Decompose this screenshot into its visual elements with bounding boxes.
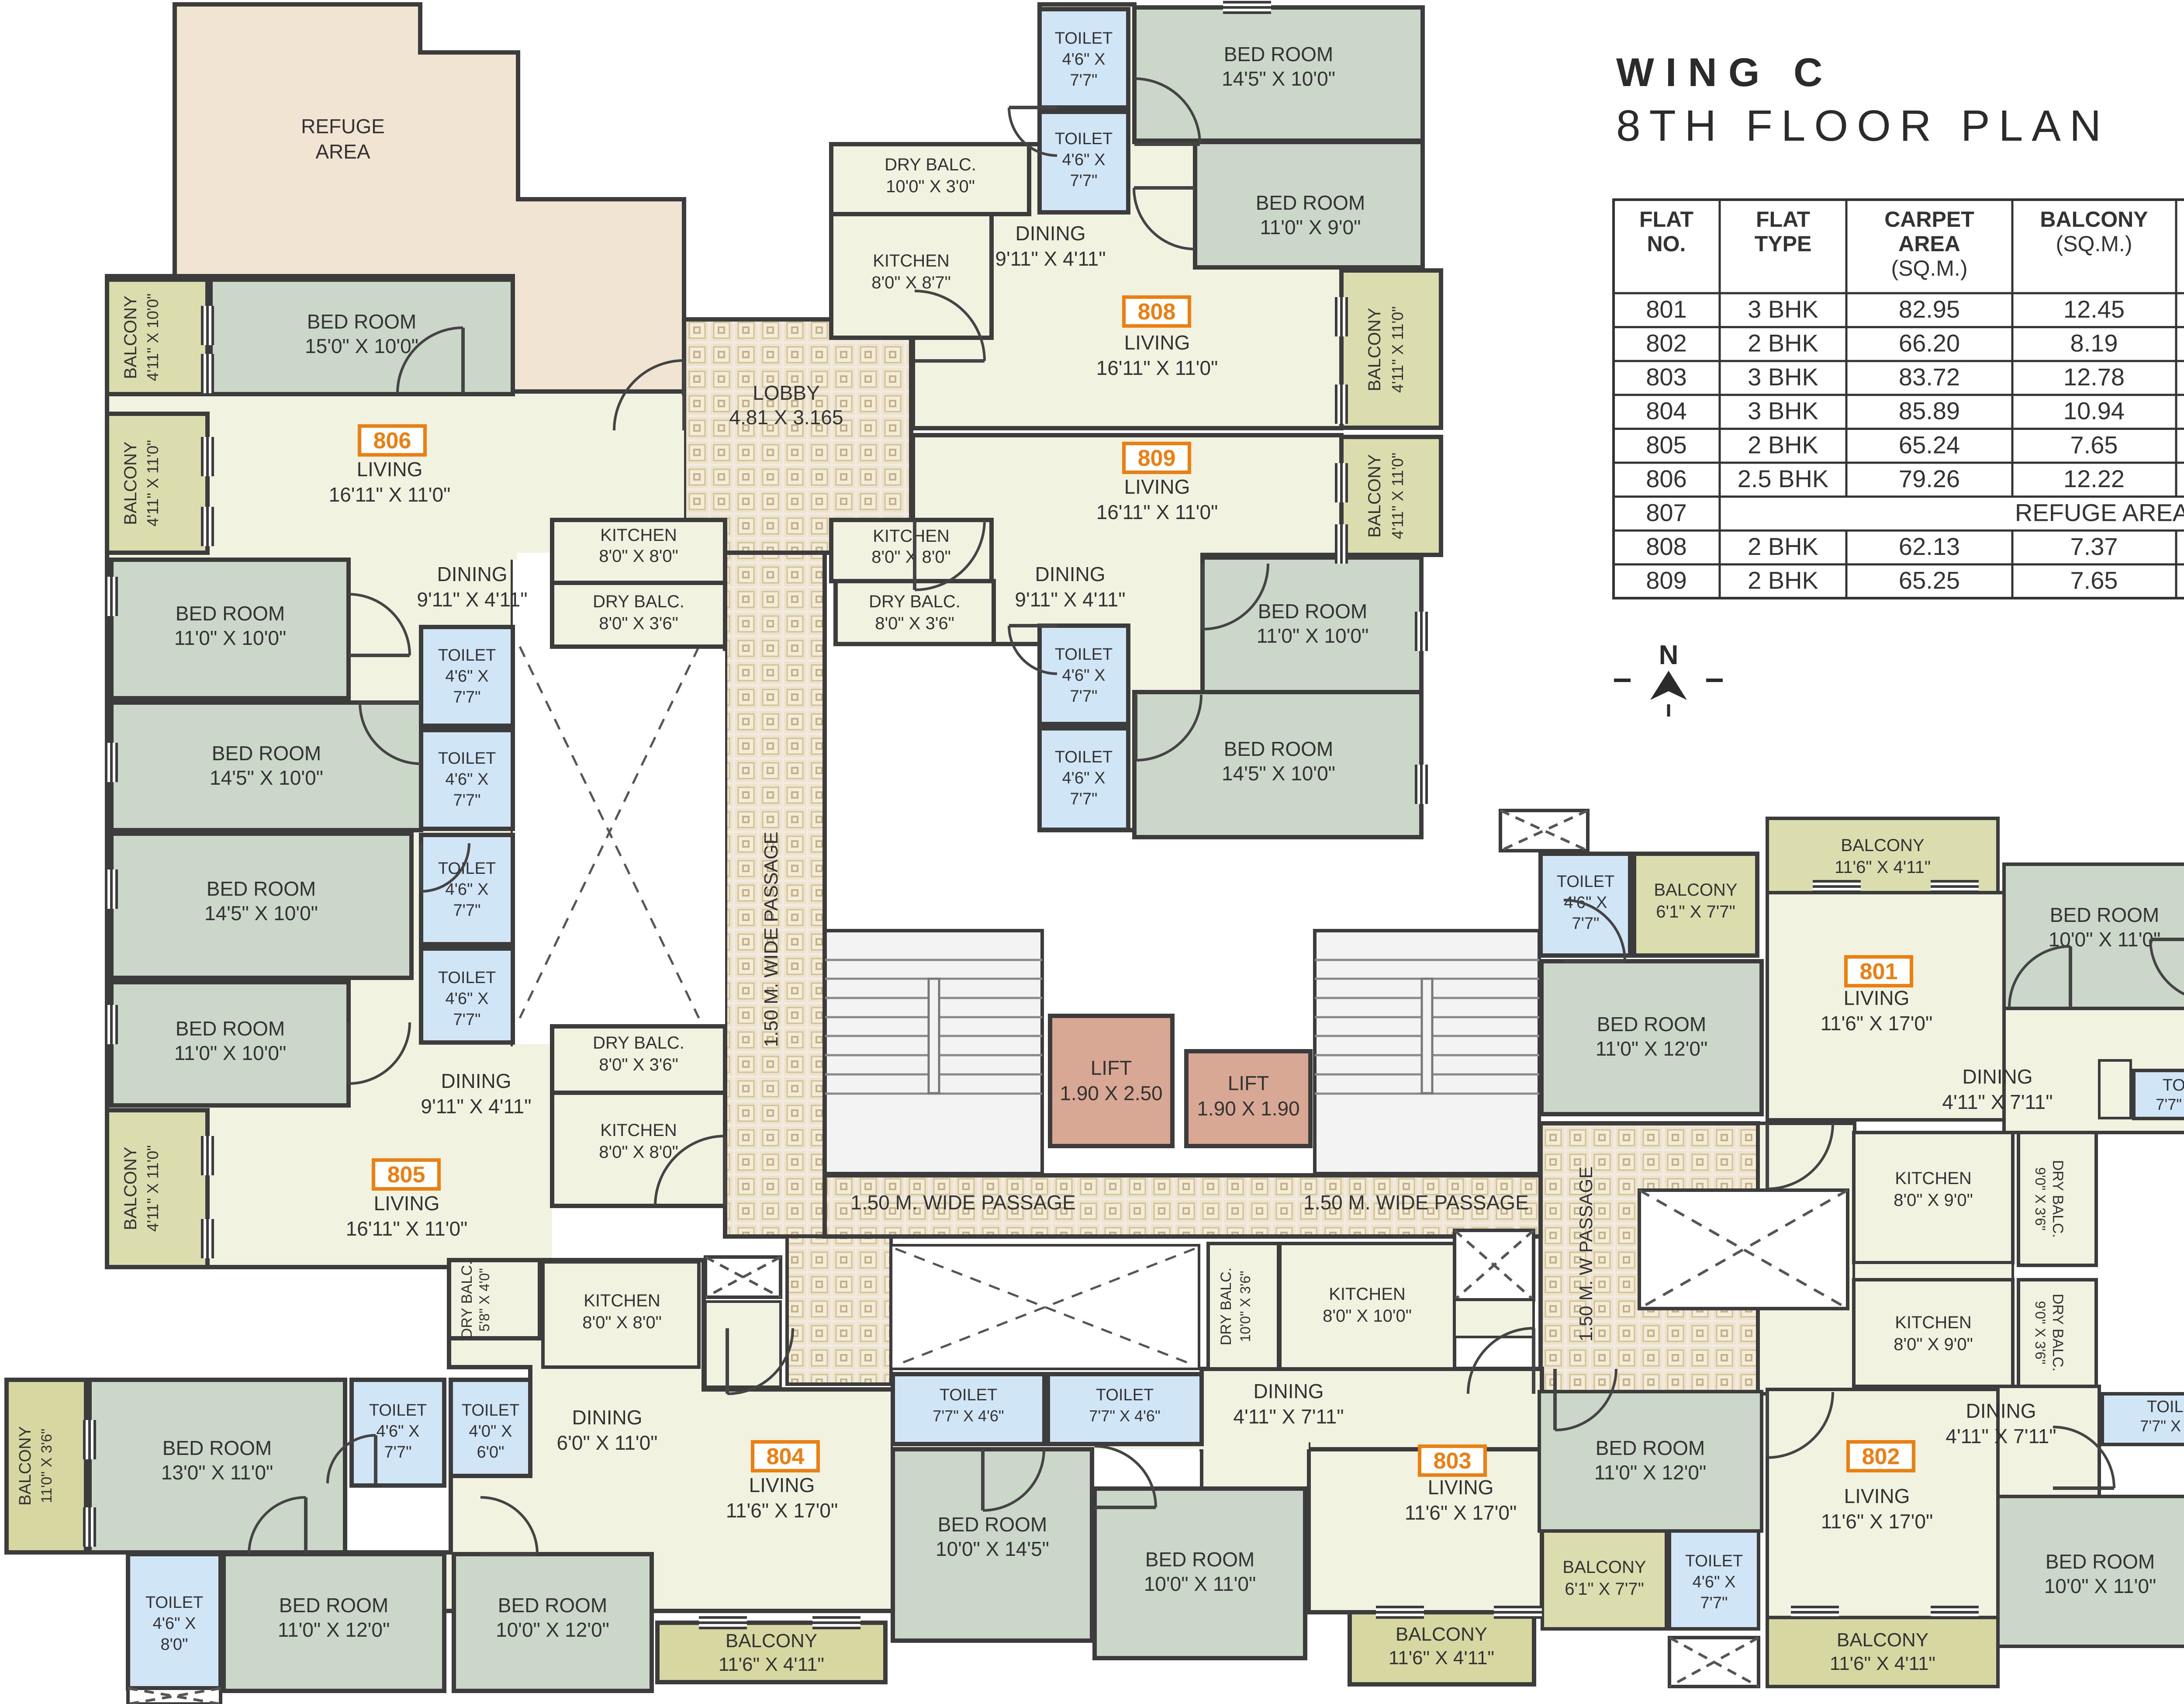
svg-text:8.19: 8.19 xyxy=(2070,329,2118,357)
svg-text:12.78: 12.78 xyxy=(2063,363,2125,391)
svg-text:13'0" X 11'0": 13'0" X 11'0" xyxy=(161,1461,273,1484)
svg-text:4'6" X: 4'6" X xyxy=(377,1422,420,1441)
svg-text:809: 809 xyxy=(1646,567,1686,594)
svg-text:11'6" X 4'11": 11'6" X 4'11" xyxy=(1835,858,1931,877)
svg-text:4'11" X 7'11": 4'11" X 7'11" xyxy=(1233,1405,1344,1428)
svg-text:8'0" X 9'0": 8'0" X 9'0" xyxy=(1894,1335,1973,1354)
svg-text:DINING: DINING xyxy=(441,1070,511,1092)
svg-text:8'0" X 8'0": 8'0" X 8'0" xyxy=(582,1313,662,1332)
svg-text:TOILET: TOILET xyxy=(145,1593,203,1612)
svg-text:DINING: DINING xyxy=(1966,1399,2036,1422)
svg-text:7'7" X 4'6": 7'7" X 4'6" xyxy=(933,1407,1004,1425)
svg-text:BED ROOM: BED ROOM xyxy=(279,1594,388,1617)
svg-text:TOILET: TOILET xyxy=(369,1401,427,1420)
svg-text:11'6" X 17'0": 11'6" X 17'0" xyxy=(1821,1510,1933,1533)
svg-text:BED ROOM: BED ROOM xyxy=(498,1594,607,1617)
svg-text:NO.: NO. xyxy=(1647,232,1686,256)
svg-text:LIVING: LIVING xyxy=(1124,475,1190,498)
svg-text:8'0" X 3'6": 8'0" X 3'6" xyxy=(599,1055,678,1074)
svg-text:11'6" X 17'0": 11'6" X 17'0" xyxy=(1821,1012,1933,1035)
svg-text:4'6" X: 4'6" X xyxy=(1062,666,1106,685)
svg-text:83.72: 83.72 xyxy=(1899,363,1960,391)
svg-text:BED ROOM: BED ROOM xyxy=(307,310,416,333)
svg-text:4'11" X 7'11": 4'11" X 7'11" xyxy=(1942,1091,2053,1113)
svg-text:BALCONY: BALCONY xyxy=(1396,1624,1487,1645)
svg-text:7'7": 7'7" xyxy=(1700,1594,1728,1612)
svg-text:11'0" X 12'0": 11'0" X 12'0" xyxy=(1594,1461,1707,1484)
svg-text:802: 802 xyxy=(1646,329,1686,357)
svg-text:15'0" X 10'0": 15'0" X 10'0" xyxy=(305,335,418,357)
svg-text:FLAT: FLAT xyxy=(1639,207,1693,232)
svg-text:805: 805 xyxy=(387,1162,425,1188)
svg-text:11'6" X 4'11": 11'6" X 4'11" xyxy=(719,1654,824,1675)
svg-text:16'11" X 11'0": 16'11" X 11'0" xyxy=(1096,357,1218,379)
svg-text:10'0" X 14'5": 10'0" X 14'5" xyxy=(936,1538,1049,1560)
svg-text:11'0" X 10'0": 11'0" X 10'0" xyxy=(174,1042,287,1064)
svg-text:BALCONY: BALCONY xyxy=(1562,1558,1646,1577)
svg-text:16'11" X 11'0": 16'11" X 11'0" xyxy=(329,483,451,506)
svg-text:14'5" X 10'0": 14'5" X 10'0" xyxy=(1222,762,1335,785)
svg-text:DINING: DINING xyxy=(437,563,508,585)
svg-text:4'6" X: 4'6" X xyxy=(1693,1573,1736,1591)
svg-text:BED ROOM: BED ROOM xyxy=(1597,1013,1706,1036)
svg-text:BED ROOM: BED ROOM xyxy=(1224,43,1333,66)
svg-text:2 BHK: 2 BHK xyxy=(1748,533,1818,560)
svg-text:LIFT: LIFT xyxy=(1228,1072,1269,1094)
svg-text:8'0" X 10'0": 8'0" X 10'0" xyxy=(1323,1306,1412,1326)
svg-text:7'7": 7'7" xyxy=(1070,790,1097,808)
svg-text:7'7": 7'7" xyxy=(1572,914,1599,933)
svg-text:10'0" X 12'0": 10'0" X 12'0" xyxy=(496,1618,609,1641)
svg-text:6'0": 6'0" xyxy=(477,1443,504,1462)
svg-text:11'0" X 9'0": 11'0" X 9'0" xyxy=(1260,216,1361,239)
svg-text:BED ROOM: BED ROOM xyxy=(1224,738,1333,760)
svg-text:2 BHK: 2 BHK xyxy=(1748,431,1818,458)
svg-text:8TH FLOOR PLAN: 8TH FLOOR PLAN xyxy=(1616,101,2110,150)
svg-text:5'8" X 4'0": 5'8" X 4'0" xyxy=(477,1268,492,1331)
svg-text:1.50 M. WIDE PASSAGE: 1.50 M. WIDE PASSAGE xyxy=(1303,1191,1529,1214)
svg-text:BALCONY: BALCONY xyxy=(726,1630,817,1652)
svg-text:809: 809 xyxy=(1138,446,1176,471)
svg-text:BED ROOM: BED ROOM xyxy=(1145,1548,1254,1571)
svg-text:LIVING: LIVING xyxy=(749,1474,815,1496)
svg-text:806: 806 xyxy=(373,428,411,454)
svg-text:7'7": 7'7" xyxy=(453,688,480,707)
svg-text:LIVING: LIVING xyxy=(1124,331,1190,354)
svg-text:9'0" X 3'6": 9'0" X 3'6" xyxy=(2032,1301,2048,1364)
svg-text:8'0" X 8'0": 8'0" X 8'0" xyxy=(599,1143,678,1162)
svg-text:BALCONY: BALCONY xyxy=(1837,1629,1928,1651)
svg-text:10'0" X 11'0": 10'0" X 11'0" xyxy=(2044,1575,2156,1597)
svg-text:(SQ.M.): (SQ.M.) xyxy=(1891,256,1968,281)
svg-text:BED ROOM: BED ROOM xyxy=(1256,191,1365,214)
svg-text:4'11" X 11'0": 4'11" X 11'0" xyxy=(144,440,162,526)
svg-text:4'11" X 10'0": 4'11" X 10'0" xyxy=(144,294,162,381)
svg-text:LIVING: LIVING xyxy=(1844,1485,1910,1507)
svg-text:TOILET: TOILET xyxy=(438,646,496,665)
svg-text:4'6" X: 4'6" X xyxy=(446,880,489,899)
svg-text:WING C: WING C xyxy=(1616,50,1834,95)
svg-text:TOILET: TOILET xyxy=(2163,1076,2184,1094)
svg-text:TOILET: TOILET xyxy=(2147,1398,2184,1416)
svg-text:BED ROOM: BED ROOM xyxy=(176,1017,285,1040)
svg-text:8'0" X 8'7": 8'0" X 8'7" xyxy=(871,273,951,292)
svg-text:806: 806 xyxy=(1646,465,1686,492)
svg-text:7'7" X 4'6": 7'7" X 4'6" xyxy=(2156,1095,2184,1113)
svg-text:TOILET: TOILET xyxy=(1055,29,1113,48)
svg-text:4'11" X 7'11": 4'11" X 7'11" xyxy=(1946,1425,2056,1448)
svg-text:11'6" X 17'0": 11'6" X 17'0" xyxy=(726,1499,838,1522)
svg-text:TOILET: TOILET xyxy=(1055,748,1113,766)
svg-text:9'0" X 3'6": 9'0" X 3'6" xyxy=(2032,1167,2048,1230)
svg-text:LIVING: LIVING xyxy=(357,458,423,481)
svg-text:BALCONY: BALCONY xyxy=(121,295,140,379)
svg-text:1.50 M. WIDE PASSAGE: 1.50 M. WIDE PASSAGE xyxy=(850,1191,1076,1214)
svg-text:14'5" X 10'0": 14'5" X 10'0" xyxy=(210,766,323,789)
svg-text:TOILET: TOILET xyxy=(1055,130,1113,148)
svg-text:4'6" X: 4'6" X xyxy=(446,770,489,789)
svg-text:DINING: DINING xyxy=(1963,1065,2033,1088)
svg-text:801: 801 xyxy=(1860,959,1898,984)
svg-text:8'0" X 8'0": 8'0" X 8'0" xyxy=(599,547,678,566)
svg-text:DINING: DINING xyxy=(1254,1380,1324,1403)
svg-text:BALCONY: BALCONY xyxy=(121,1146,140,1230)
svg-text:9'11" X 4'11": 9'11" X 4'11" xyxy=(995,247,1106,270)
svg-text:14'5" X 10'0": 14'5" X 10'0" xyxy=(1222,67,1335,90)
svg-text:BED ROOM: BED ROOM xyxy=(1596,1437,1705,1459)
svg-text:7'7": 7'7" xyxy=(1070,172,1097,190)
svg-text:805: 805 xyxy=(1646,431,1686,458)
svg-text:BED ROOM: BED ROOM xyxy=(2050,904,2159,926)
svg-text:7'7" X 4'6": 7'7" X 4'6" xyxy=(2140,1417,2184,1435)
svg-text:2 BHK: 2 BHK xyxy=(1748,567,1818,594)
svg-text:KITCHEN: KITCHEN xyxy=(873,251,950,270)
svg-text:7.65: 7.65 xyxy=(2070,567,2118,594)
svg-text:16'11" X 11'0": 16'11" X 11'0" xyxy=(1096,501,1218,523)
svg-text:KITCHEN: KITCHEN xyxy=(873,526,950,546)
svg-text:1.90 X 1.90: 1.90 X 1.90 xyxy=(1197,1097,1299,1120)
svg-text:KITCHEN: KITCHEN xyxy=(584,1291,660,1310)
svg-text:3 BHK: 3 BHK xyxy=(1748,363,1818,391)
svg-text:DRY BALC.: DRY BALC. xyxy=(1218,1268,1234,1345)
svg-text:4'11" X 11'0": 4'11" X 11'0" xyxy=(1389,306,1406,393)
svg-text:CARPET: CARPET xyxy=(1884,207,1974,232)
svg-text:4'6" X: 4'6" X xyxy=(1564,894,1607,912)
svg-text:7'7" X 4'6": 7'7" X 4'6" xyxy=(1089,1407,1160,1425)
svg-text:802: 802 xyxy=(1862,1444,1900,1469)
svg-text:85.89: 85.89 xyxy=(1899,397,1960,425)
svg-text:803: 803 xyxy=(1646,363,1686,391)
svg-text:DINING: DINING xyxy=(572,1406,643,1429)
svg-text:DRY BALC.: DRY BALC. xyxy=(869,592,961,611)
svg-text:65.25: 65.25 xyxy=(1899,567,1960,594)
svg-text:LIVING: LIVING xyxy=(1428,1476,1494,1499)
svg-text:4.81 X 3.165: 4.81 X 3.165 xyxy=(729,406,843,429)
svg-text:TOILET: TOILET xyxy=(438,749,496,768)
svg-text:801: 801 xyxy=(1646,295,1686,323)
svg-text:KITCHEN: KITCHEN xyxy=(1895,1313,1972,1332)
svg-text:BALCONY: BALCONY xyxy=(1365,308,1384,391)
svg-text:11'0" X 3'6": 11'0" X 3'6" xyxy=(38,1429,55,1503)
svg-text:FLAT: FLAT xyxy=(1756,207,1810,232)
svg-text:TOILET: TOILET xyxy=(1096,1386,1154,1404)
svg-text:KITCHEN: KITCHEN xyxy=(600,1121,677,1140)
svg-text:11'6" X 4'11": 11'6" X 4'11" xyxy=(1830,1653,1935,1674)
svg-text:6'0" X 11'0": 6'0" X 11'0" xyxy=(557,1431,658,1454)
svg-text:LIVING: LIVING xyxy=(374,1192,440,1215)
svg-text:9'11" X 4'11": 9'11" X 4'11" xyxy=(1015,588,1125,611)
svg-text:DRY BALC.: DRY BALC. xyxy=(2049,1294,2066,1372)
svg-text:4'0" X: 4'0" X xyxy=(469,1422,512,1441)
svg-text:LIFT: LIFT xyxy=(1091,1056,1132,1079)
svg-text:807: 807 xyxy=(1646,499,1686,526)
svg-text:7'7": 7'7" xyxy=(453,1011,480,1029)
svg-text:9'11" X 4'11": 9'11" X 4'11" xyxy=(417,588,527,611)
svg-text:62.13: 62.13 xyxy=(1899,533,1960,560)
svg-text:BED ROOM: BED ROOM xyxy=(207,877,316,900)
svg-text:DRY BALC.: DRY BALC. xyxy=(459,1261,475,1339)
svg-text:1.50 M. WIDE PASSAGE: 1.50 M. WIDE PASSAGE xyxy=(760,831,782,1047)
svg-text:7.65: 7.65 xyxy=(2070,431,2118,458)
svg-text:12.45: 12.45 xyxy=(2063,295,2125,323)
svg-text:BALCONY: BALCONY xyxy=(1841,836,1924,855)
svg-text:(SQ.M.): (SQ.M.) xyxy=(2056,232,2132,256)
svg-text:11'6" X 17'0": 11'6" X 17'0" xyxy=(1405,1501,1517,1524)
svg-text:LOBBY: LOBBY xyxy=(753,381,819,404)
svg-text:BALCONY: BALCONY xyxy=(1654,880,1737,900)
svg-text:AREA: AREA xyxy=(1898,232,1960,256)
svg-text:BED ROOM: BED ROOM xyxy=(2046,1550,2155,1573)
svg-text:16'11" X 11'0": 16'11" X 11'0" xyxy=(346,1217,468,1240)
svg-text:LIVING: LIVING xyxy=(1844,987,1910,1009)
svg-text:DRY BALC.: DRY BALC. xyxy=(593,592,684,611)
svg-text:3 BHK: 3 BHK xyxy=(1748,295,1818,323)
svg-text:8'0" X 3'6": 8'0" X 3'6" xyxy=(875,614,954,633)
svg-text:BED ROOM: BED ROOM xyxy=(176,602,285,625)
svg-text:10.94: 10.94 xyxy=(2063,397,2125,425)
svg-text:DRY BALC.: DRY BALC. xyxy=(2049,1160,2066,1238)
svg-text:14'5" X 10'0": 14'5" X 10'0" xyxy=(204,902,318,925)
svg-text:8'0" X 8'0": 8'0" X 8'0" xyxy=(871,547,951,567)
svg-text:KITCHEN: KITCHEN xyxy=(600,526,677,545)
svg-text:TOILET: TOILET xyxy=(438,859,496,878)
svg-text:7'7": 7'7" xyxy=(1070,687,1097,706)
svg-text:65.24: 65.24 xyxy=(1899,431,1960,458)
svg-text:8'0": 8'0" xyxy=(160,1635,188,1654)
svg-text:BED ROOM: BED ROOM xyxy=(162,1437,272,1459)
svg-text:BED ROOM: BED ROOM xyxy=(1258,600,1367,623)
svg-text:808: 808 xyxy=(1646,533,1686,560)
svg-text:79.26: 79.26 xyxy=(1899,465,1960,492)
svg-text:TOILET: TOILET xyxy=(1055,645,1113,664)
svg-text:N: N xyxy=(1659,640,1679,670)
svg-text:10'0" X 3'0": 10'0" X 3'0" xyxy=(886,177,975,196)
svg-text:6'1" X 7'7": 6'1" X 7'7" xyxy=(1656,902,1735,921)
svg-text:7'7": 7'7" xyxy=(453,791,480,810)
svg-text:2 BHK: 2 BHK xyxy=(1748,329,1818,357)
svg-text:7'7": 7'7" xyxy=(453,901,480,920)
svg-text:4'6" X: 4'6" X xyxy=(446,667,489,686)
svg-text:803: 803 xyxy=(1434,1448,1472,1474)
svg-text:BALCONY: BALCONY xyxy=(2040,207,2148,232)
svg-text:4'6" X: 4'6" X xyxy=(1062,151,1106,169)
svg-text:REFUGE: REFUGE xyxy=(301,115,385,138)
svg-text:804: 804 xyxy=(1646,397,1686,425)
svg-text:808: 808 xyxy=(1138,299,1176,325)
svg-text:BALCONY: BALCONY xyxy=(16,1426,35,1506)
svg-text:TYPE: TYPE xyxy=(1755,232,1812,256)
svg-text:TOILET: TOILET xyxy=(1685,1552,1743,1570)
svg-text:7'7": 7'7" xyxy=(384,1443,411,1462)
svg-text:BALCONY: BALCONY xyxy=(121,441,140,525)
svg-text:TOILET: TOILET xyxy=(940,1386,997,1404)
svg-text:TOILET: TOILET xyxy=(438,969,496,987)
svg-text:11'6" X 4'11": 11'6" X 4'11" xyxy=(1389,1647,1494,1669)
svg-text:DRY BALC.: DRY BALC. xyxy=(885,155,976,174)
svg-text:11'0" X 10'0": 11'0" X 10'0" xyxy=(174,627,287,649)
svg-text:10'0" X 11'0": 10'0" X 11'0" xyxy=(1144,1572,1256,1595)
svg-text:4'6" X: 4'6" X xyxy=(1062,50,1106,69)
svg-text:BED ROOM: BED ROOM xyxy=(938,1513,1047,1536)
svg-text:AREA: AREA xyxy=(315,140,370,163)
svg-text:66.20: 66.20 xyxy=(1899,329,1960,357)
svg-text:9'11" X 4'11": 9'11" X 4'11" xyxy=(421,1095,531,1118)
svg-text:6'1" X 7'7": 6'1" X 7'7" xyxy=(1565,1579,1644,1599)
svg-text:DINING: DINING xyxy=(1016,222,1086,245)
svg-text:4'11" X 11'0": 4'11" X 11'0" xyxy=(144,1145,162,1232)
svg-text:1.90 X 2.50: 1.90 X 2.50 xyxy=(1060,1082,1162,1105)
svg-text:11'0" X 10'0": 11'0" X 10'0" xyxy=(1257,624,1369,647)
svg-text:REFUGE AREA: REFUGE AREA xyxy=(2015,499,2184,526)
svg-text:7'7": 7'7" xyxy=(1070,71,1097,90)
svg-text:DINING: DINING xyxy=(1035,563,1106,585)
svg-text:2.5 BHK: 2.5 BHK xyxy=(1738,465,1829,492)
svg-text:4'6" X: 4'6" X xyxy=(1062,769,1106,787)
svg-text:KITCHEN: KITCHEN xyxy=(1895,1169,1972,1188)
svg-text:11'0" X 12'0": 11'0" X 12'0" xyxy=(1596,1037,1708,1060)
svg-text:BED ROOM: BED ROOM xyxy=(212,742,321,765)
svg-text:8'0" X 3'6": 8'0" X 3'6" xyxy=(599,614,678,633)
svg-text:3 BHK: 3 BHK xyxy=(1748,397,1818,425)
svg-text:DRY BALC.: DRY BALC. xyxy=(593,1033,684,1053)
svg-text:4'6" X: 4'6" X xyxy=(446,990,489,1008)
svg-text:BALCONY: BALCONY xyxy=(1365,454,1384,537)
svg-text:12.22: 12.22 xyxy=(2063,465,2125,492)
svg-text:4'11" X 11'0": 4'11" X 11'0" xyxy=(1389,453,1406,539)
svg-text:7.37: 7.37 xyxy=(2070,533,2118,560)
svg-text:4'6" X: 4'6" X xyxy=(153,1614,196,1633)
svg-text:10'0" X 3'6": 10'0" X 3'6" xyxy=(1237,1271,1253,1342)
svg-text:1.50 M. W PASSAGE: 1.50 M. W PASSAGE xyxy=(1576,1167,1596,1342)
svg-text:11'0" X 12'0": 11'0" X 12'0" xyxy=(278,1618,390,1641)
svg-text:82.95: 82.95 xyxy=(1899,295,1960,323)
svg-text:TOILET: TOILET xyxy=(462,1401,519,1420)
svg-text:8'0" X 9'0": 8'0" X 9'0" xyxy=(1894,1191,1973,1210)
svg-text:TOILET: TOILET xyxy=(1557,873,1614,891)
svg-text:804: 804 xyxy=(767,1444,805,1469)
svg-text:KITCHEN: KITCHEN xyxy=(1329,1285,1406,1304)
